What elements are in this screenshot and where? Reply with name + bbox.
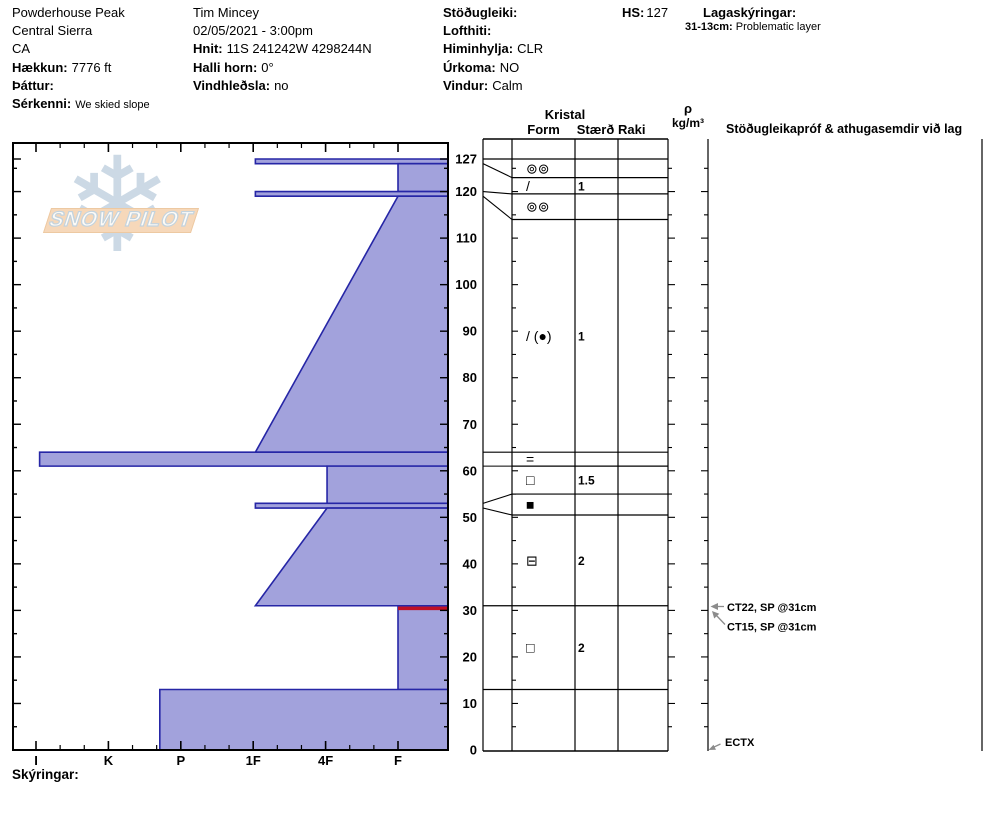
depth-axis-label: 10 bbox=[463, 696, 477, 711]
hardness-axis-label: F bbox=[394, 753, 402, 768]
grain-form-symbol: ⊚⊚ bbox=[526, 199, 549, 215]
depth-axis-label: 20 bbox=[463, 649, 477, 664]
depth-axis-label: 100 bbox=[455, 277, 477, 292]
snow-layer-bar bbox=[255, 508, 448, 606]
stability-test-annotation: ECTX bbox=[725, 737, 755, 749]
hardness-axis-label: 1F bbox=[246, 753, 261, 768]
snow-layer-bar bbox=[398, 606, 448, 690]
depth-axis-label: 0 bbox=[470, 743, 477, 758]
annotation-arrowhead bbox=[711, 603, 719, 610]
layer-connector-line bbox=[483, 508, 512, 515]
grain-form-symbol: ■ bbox=[526, 497, 534, 513]
problematic-layer-flag bbox=[398, 607, 448, 611]
annotation-arrowhead bbox=[709, 745, 717, 750]
snowpilot-profile-page: { "header": { "site": { "name": "Powderh… bbox=[0, 0, 994, 840]
hardness-axis-label: K bbox=[104, 753, 114, 768]
depth-axis-label: 50 bbox=[463, 510, 477, 525]
depth-axis-label: 30 bbox=[463, 603, 477, 618]
grain-form-symbol: / bbox=[526, 178, 530, 194]
stability-test-annotation: CT15, SP @31cm bbox=[727, 622, 817, 634]
layer-connector-line bbox=[483, 164, 512, 178]
grain-form-symbol: ⊚⊚ bbox=[526, 160, 549, 176]
grain-size-value: 2 bbox=[578, 554, 585, 568]
hardness-axis-label: P bbox=[176, 753, 185, 768]
grain-form-symbol: □ bbox=[526, 640, 535, 656]
grain-form-symbol: / (●) bbox=[526, 328, 552, 344]
depth-axis-label: 60 bbox=[463, 463, 477, 478]
depth-axis-label: 90 bbox=[463, 324, 477, 339]
stability-test-annotation: CT22, SP @31cm bbox=[727, 602, 817, 614]
depth-axis-label: 120 bbox=[455, 184, 477, 199]
depth-axis-label: 127 bbox=[455, 152, 477, 167]
snow-layer-bar bbox=[327, 466, 448, 503]
grain-size-value: 1.5 bbox=[578, 474, 595, 488]
depth-axis-label: 110 bbox=[456, 231, 477, 246]
snow-layer-bar bbox=[160, 690, 448, 750]
grain-size-value: 2 bbox=[578, 641, 585, 655]
hardness-axis-label: I bbox=[34, 753, 38, 768]
snow-layer-bar bbox=[398, 164, 448, 192]
grain-form-symbol: ⊟ bbox=[526, 552, 538, 568]
grain-size-value: 1 bbox=[578, 179, 585, 193]
depth-axis-label: 80 bbox=[463, 370, 477, 385]
grain-form-symbol: □ bbox=[526, 472, 535, 488]
layer-connector-line bbox=[483, 494, 512, 503]
layer-connector-line bbox=[483, 192, 512, 194]
snow-layer-bar bbox=[40, 452, 448, 466]
depth-axis-label: 40 bbox=[463, 556, 477, 571]
depth-axis-label: 70 bbox=[463, 417, 477, 432]
grain-form-symbol: = bbox=[526, 451, 534, 467]
snow-profile-chart: 1271201101009080706050403020100IKP1F4FF⊚… bbox=[0, 0, 994, 840]
grain-size-value: 1 bbox=[578, 329, 585, 343]
layer-connector-line bbox=[483, 196, 512, 219]
snow-layer-bar bbox=[255, 196, 448, 452]
hardness-axis-label: 4F bbox=[318, 753, 333, 768]
annotation-arrow bbox=[716, 615, 725, 625]
